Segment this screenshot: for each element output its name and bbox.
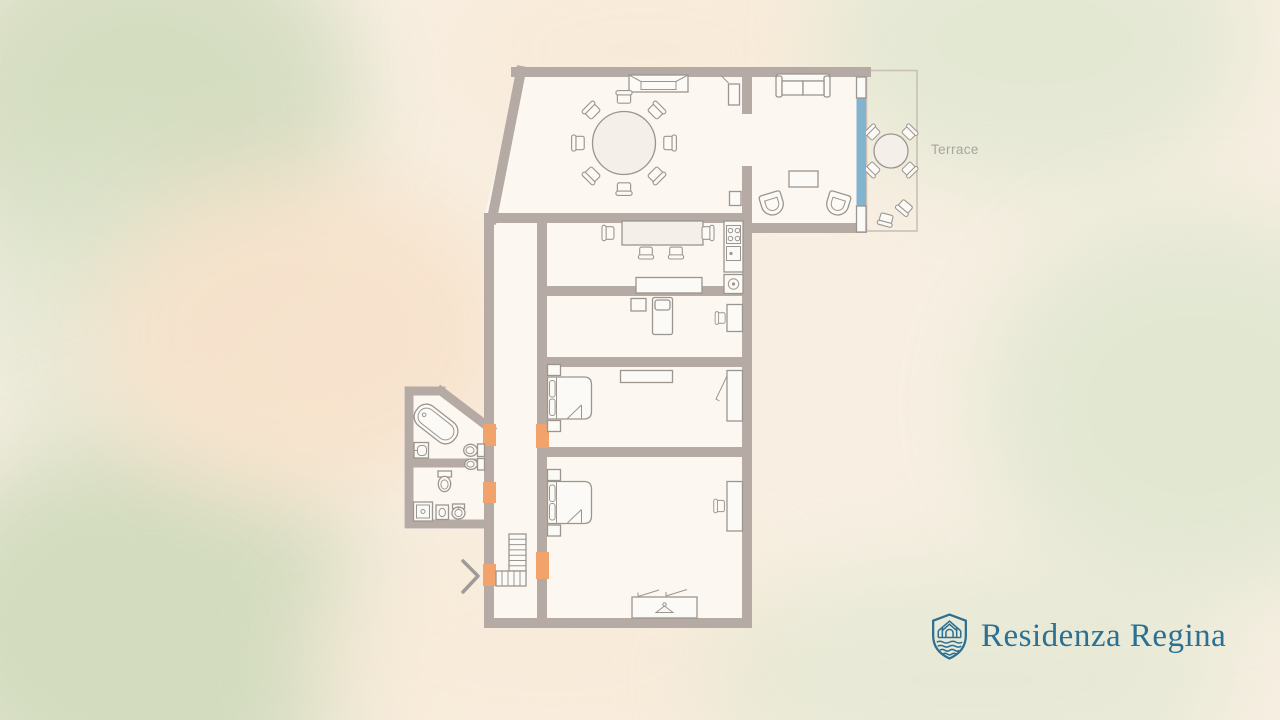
terrace-lounger — [877, 212, 895, 228]
toilet — [438, 471, 452, 492]
chair — [702, 225, 714, 240]
desk — [727, 305, 743, 332]
single-bed — [653, 298, 673, 335]
kitchen-sideboard — [636, 278, 702, 294]
door-marker — [483, 482, 496, 503]
kitchen-counter — [724, 221, 743, 272]
desk-chair — [714, 499, 725, 513]
sofa — [776, 74, 830, 97]
terrace — [863, 71, 919, 232]
nightstand — [548, 525, 561, 536]
desk — [727, 482, 743, 532]
canvas: Terrace Residenza Regina — [0, 0, 1280, 720]
floor-plan — [0, 0, 1280, 720]
side-table — [730, 192, 742, 206]
glass-sliding-door — [857, 77, 867, 232]
terrace-lounger — [895, 198, 914, 217]
washing-machine — [724, 275, 743, 294]
entrance-arrow-icon — [463, 561, 478, 592]
terrace-table — [874, 134, 908, 168]
bathroom-sink — [414, 443, 429, 459]
nightstand — [548, 365, 561, 376]
toilet — [464, 444, 485, 457]
laundry-bidet — [436, 505, 449, 520]
chair — [616, 91, 632, 104]
double-bed — [548, 377, 592, 419]
chair — [616, 183, 632, 196]
double-bed — [548, 482, 592, 524]
nightstand — [548, 470, 561, 481]
nightstand — [548, 421, 561, 432]
chair — [664, 135, 677, 151]
door-marker — [483, 424, 496, 446]
nightstand — [631, 299, 646, 312]
dresser — [621, 371, 673, 383]
coffee-table — [789, 171, 818, 187]
chair — [602, 225, 614, 240]
brand-logo: Residenza Regina — [931, 613, 1226, 660]
chair — [668, 247, 683, 259]
chair — [572, 135, 585, 151]
pedestal-sink — [452, 504, 465, 519]
brand-name: Residenza Regina — [981, 618, 1226, 655]
chair — [638, 247, 653, 259]
entrance-door-marker — [483, 564, 496, 586]
tv-console — [729, 84, 740, 105]
bidet — [465, 459, 485, 471]
shield-crest-icon — [931, 613, 968, 660]
door-marker — [536, 552, 549, 579]
kitchen-table — [622, 221, 703, 245]
shower — [414, 502, 433, 521]
dining-table — [593, 112, 656, 175]
terrace-label: Terrace — [931, 142, 979, 157]
desk-chair — [715, 312, 725, 325]
